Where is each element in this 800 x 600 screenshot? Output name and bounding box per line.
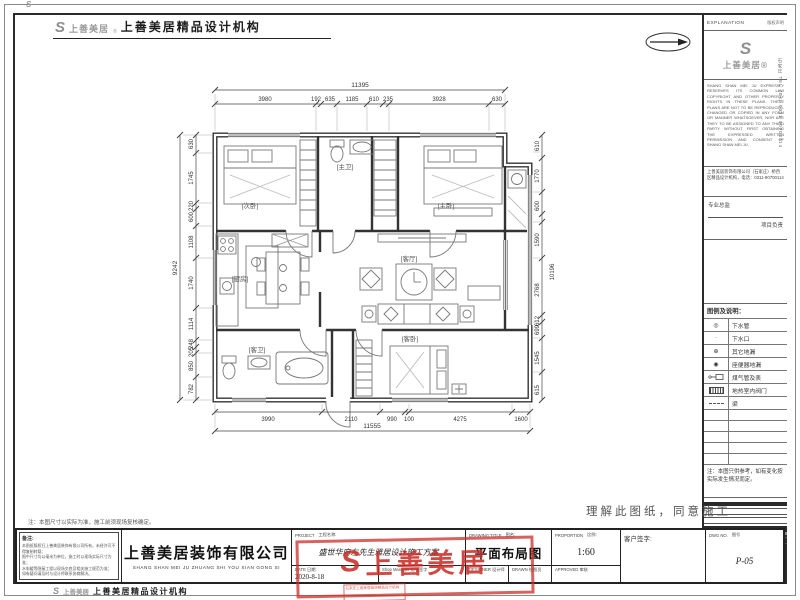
svg-text:3928: 3928 (432, 97, 446, 103)
room-label-guest-bedroom: [客卧] (402, 334, 419, 343)
drawing-number-box: DWG NO. 图号 P-05 (705, 530, 783, 582)
svg-text:100: 100 (404, 417, 415, 423)
company-box: 上善美居装饰有限公司 SHANG SHAN MEI JU ZHUANG SHI … (121, 530, 291, 582)
remark-box: 备注: 本图纸版权归上善美居装饰有限公司所有，未经许可不得复制转载； 图中尺寸均… (17, 530, 121, 582)
svg-text:782: 782 (189, 383, 195, 394)
project-label-en: PROJECT (295, 533, 315, 538)
svg-text:10196: 10196 (550, 263, 556, 280)
room-label-master-bath: [主卫] (337, 162, 354, 171)
svg-text:1590: 1590 (535, 233, 541, 247)
svg-text:1770: 1770 (535, 169, 541, 183)
dwg-label-cn: 图号 (732, 532, 740, 538)
footer-brand: 上善美居精品设计机构 (93, 586, 188, 597)
dwg-label-en: DWG NO. (709, 533, 728, 538)
svg-text:635: 635 (325, 97, 336, 103)
svg-text:600: 600 (535, 200, 541, 211)
svg-text:850: 850 (189, 360, 195, 371)
client-signature-label: 客户签字: (624, 533, 702, 543)
svg-text:3980: 3980 (258, 97, 272, 103)
room-label-guest-bath: [客卫] (249, 345, 266, 354)
dimension-right: 610 1770 600 1590 2768 612 699 1545 615 … (535, 132, 556, 403)
drawing-number: P-05 (706, 540, 783, 582)
project-label-cn: 工程名称: (319, 532, 337, 538)
footer-wordmark: 上善美居 (63, 586, 89, 596)
client-signature-box: 客户签字: (620, 530, 705, 582)
svg-text:600: 600 (189, 211, 195, 222)
svg-text:205: 205 (189, 346, 195, 357)
svg-text:1745: 1745 (189, 171, 195, 185)
room-label-master-bedroom: [主卧] (438, 201, 455, 210)
scale-note: 注：本图尺寸以实际为准，施工前须现场复核确定。 (28, 518, 155, 526)
dimension-bottom: 3990 2110 990 100 4275 1600 11555 (212, 409, 533, 434)
scale-value: 1:60 (552, 540, 620, 565)
approved-cell: APPROVED 审核 (552, 566, 620, 582)
room-label-kitchen: [厨房] (232, 274, 249, 283)
room-label-living-room: [客厅] (401, 254, 418, 263)
svg-text:192: 192 (311, 97, 322, 103)
svg-text:612: 612 (535, 315, 541, 326)
svg-text:610: 610 (369, 97, 380, 103)
room-label-secondary-bedroom: [次卧] (242, 201, 259, 210)
north-arrow-icon (646, 33, 690, 51)
company-name-pinyin: SHANG SHAN MEI JU ZHUANG SHI YOU XIAN GO… (133, 565, 280, 570)
svg-text:990: 990 (387, 417, 398, 423)
dimension-top: 11395 3980 192 635 1185 610 235 3928 630 (212, 82, 508, 107)
svg-text:4275: 4275 (453, 417, 467, 423)
svg-text:630: 630 (492, 97, 503, 103)
proportion-label-cn: 比例: (587, 532, 597, 538)
footer-logo-icon: S (53, 587, 59, 596)
svg-text:610: 610 (535, 140, 541, 151)
dimension-left: 9242 630 1745 220 600 1108 1740 1114 248… (172, 132, 199, 403)
svg-text:9242: 9242 (172, 260, 179, 275)
drawing-sheet: S S 上善美居 ® 上善美居精品设计机构 EXPLANATION 版权声明 S… (0, 0, 800, 600)
svg-text:220: 220 (189, 200, 195, 211)
svg-text:235: 235 (383, 97, 394, 103)
svg-text:1545: 1545 (535, 351, 541, 365)
svg-text:2110: 2110 (345, 417, 359, 423)
svg-text:1185: 1185 (346, 97, 360, 103)
company-name: 上善美居装饰有限公司 (124, 542, 289, 563)
svg-text:11395: 11395 (351, 82, 369, 89)
stamp-subtext: 石家庄上善美居装饰精品设计机构 (343, 583, 405, 600)
svg-text:1600: 1600 (514, 417, 528, 423)
proportion-box: PROPORTION 比例: 1:60 APPROVED 审核 (551, 530, 620, 582)
svg-text:2768: 2768 (535, 283, 541, 297)
svg-text:615: 615 (535, 384, 541, 395)
stamp-logo-icon: S (340, 547, 361, 577)
stamp-text: 上善美居 (365, 540, 490, 582)
svg-text:1114: 1114 (189, 317, 195, 330)
remark-title: 备注: (22, 535, 116, 542)
company-red-stamp: S 上善美居 石家庄上善美居装饰精品设计机构 (295, 536, 534, 599)
svg-text:1108: 1108 (189, 235, 195, 249)
svg-text:630: 630 (189, 138, 195, 149)
svg-text:1740: 1740 (189, 276, 195, 290)
proportion-label-en: PROPORTION (555, 533, 583, 538)
agreement-note: 理解此图纸，同意施工 (586, 503, 731, 519)
svg-text:699: 699 (535, 324, 541, 335)
svg-text:11555: 11555 (363, 423, 381, 430)
svg-text:3990: 3990 (261, 417, 275, 423)
